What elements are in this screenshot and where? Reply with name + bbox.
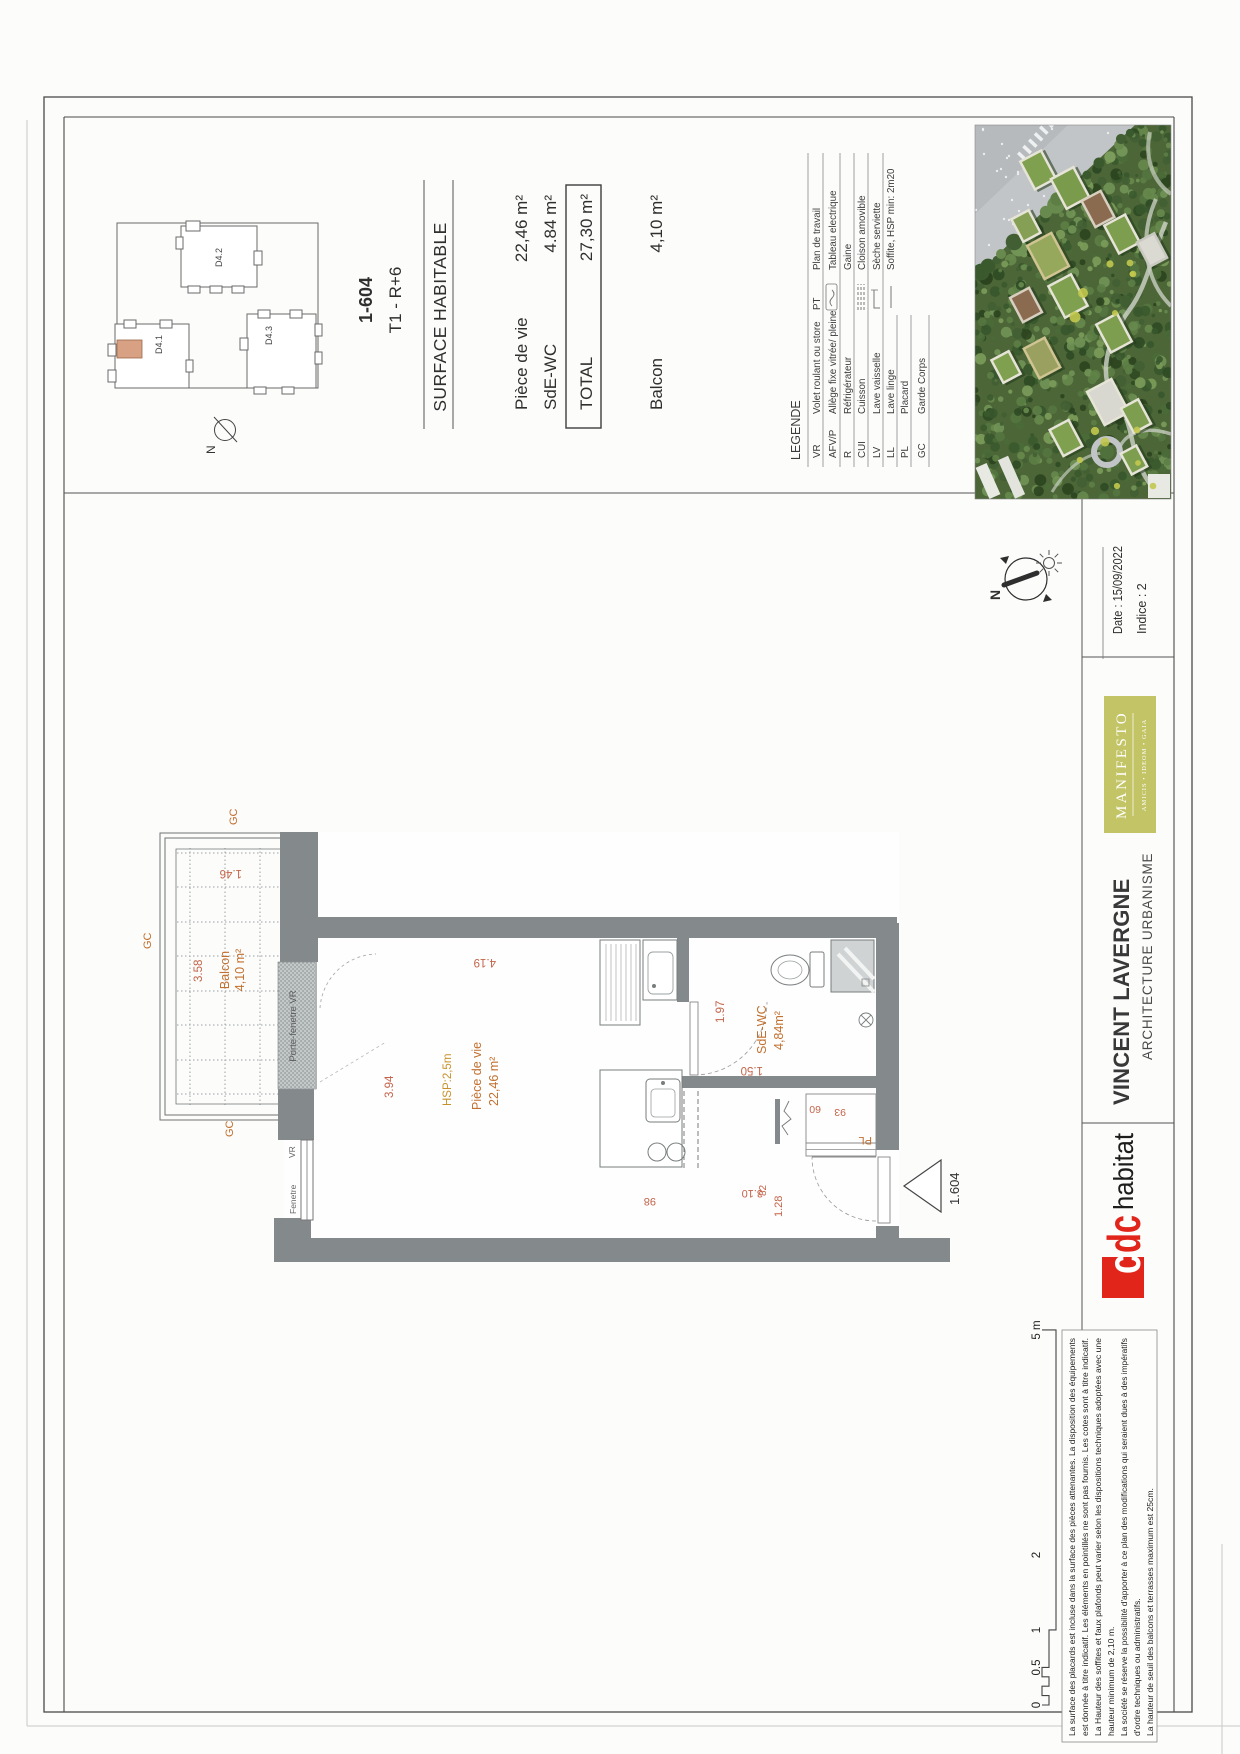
svg-text:GC: GC xyxy=(917,443,928,458)
svg-text:4.19: 4.19 xyxy=(474,956,496,968)
svg-text:22,46 m²: 22,46 m² xyxy=(512,195,531,262)
svg-text:3.58: 3.58 xyxy=(193,960,205,982)
svg-text:PL: PL xyxy=(859,1134,872,1146)
svg-text:habitat: habitat xyxy=(1108,1133,1139,1210)
svg-text:PT: PT xyxy=(812,297,823,310)
svg-text:1.28: 1.28 xyxy=(773,1196,785,1217)
svg-text:1.604: 1.604 xyxy=(947,1172,962,1205)
svg-text:Gaine: Gaine xyxy=(843,243,854,270)
svg-text:R: R xyxy=(843,451,854,458)
svg-text:0: 0 xyxy=(1031,1702,1043,1708)
svg-text:LL: LL xyxy=(886,447,897,458)
svg-text:93: 93 xyxy=(834,1106,846,1118)
svg-text:SURFACE HABITABLE: SURFACE HABITABLE xyxy=(430,222,450,411)
svg-text:Indice : 2: Indice : 2 xyxy=(1135,583,1149,634)
svg-text:Plan de travail: Plan de travail xyxy=(812,208,823,270)
svg-text:VR: VR xyxy=(812,444,823,458)
svg-text:Tableau electrique: Tableau electrique xyxy=(828,190,839,270)
svg-text:2: 2 xyxy=(1031,1552,1043,1558)
svg-text:3.94: 3.94 xyxy=(384,1075,396,1098)
svg-text:1.46: 1.46 xyxy=(220,867,242,879)
svg-text:GC: GC xyxy=(228,808,240,825)
svg-text:60: 60 xyxy=(809,1103,821,1115)
svg-text:dc: dc xyxy=(1098,1215,1150,1253)
svg-text:Sèche serviette: Sèche serviette xyxy=(872,202,883,270)
svg-text:d'ordre techniques ou administ: d'ordre techniques ou administratifs. xyxy=(1132,1598,1142,1736)
svg-text:SdE-WC: SdE-WC xyxy=(541,344,560,410)
svg-text:4,84m²: 4,84m² xyxy=(772,1011,786,1050)
svg-text:Cloison amovible: Cloison amovible xyxy=(857,195,868,270)
svg-text:1: 1 xyxy=(1031,1627,1043,1633)
svg-text:LV: LV xyxy=(872,446,883,458)
svg-text:MANIFESTO: MANIFESTO xyxy=(1114,711,1130,819)
svg-text:Réfrigérateur: Réfrigérateur xyxy=(843,356,854,414)
svg-text:N: N xyxy=(204,445,218,454)
svg-text:La hauteur de seuil des balcon: La hauteur de seuil des balcons et terra… xyxy=(1145,1488,1155,1736)
svg-text:Date : 15/09/2022: Date : 15/09/2022 xyxy=(1111,546,1125,634)
svg-text:c: c xyxy=(1098,1254,1150,1274)
svg-text:AFV/P: AFV/P xyxy=(828,429,839,458)
svg-text:4,10 m²: 4,10 m² xyxy=(647,195,666,253)
svg-text:Porte-fenetre VR: Porte-fenetre VR xyxy=(288,990,299,1061)
svg-text:VINCENT LAVERGNE: VINCENT LAVERGNE xyxy=(1109,879,1134,1105)
svg-text:La Hauteur des soffites et fau: La Hauteur des soffites et faux plafonds… xyxy=(1093,1338,1103,1736)
svg-text:22,46 m²: 22,46 m² xyxy=(487,1057,501,1106)
svg-text:Allège fixe vitrée/ pleine: Allège fixe vitrée/ pleine xyxy=(828,310,839,414)
svg-text:La société se réserve la possi: La société se réserve la possibilité d'a… xyxy=(1119,1338,1129,1736)
svg-text:PL: PL xyxy=(900,445,911,458)
svg-text:LEGENDE: LEGENDE xyxy=(789,400,803,460)
svg-text:D4.3: D4.3 xyxy=(264,326,274,345)
svg-text:CUI: CUI xyxy=(857,441,868,458)
svg-text:hauteur minimum de 2,10 m.: hauteur minimum de 2,10 m. xyxy=(1106,1627,1116,1736)
svg-text:4.84 m²: 4.84 m² xyxy=(541,195,560,253)
svg-text:Lave linge: Lave linge xyxy=(886,369,897,414)
svg-text:D4.2: D4.2 xyxy=(214,248,224,267)
svg-text:AMICIS • IDEOM • GAIA: AMICIS • IDEOM • GAIA xyxy=(1141,719,1148,811)
svg-text:27,30 m²: 27,30 m² xyxy=(577,194,596,261)
svg-text:HSP:2,5m: HSP:2,5m xyxy=(442,1054,454,1106)
svg-text:Balcon: Balcon xyxy=(218,951,232,989)
svg-text:SdE-WC: SdE-WC xyxy=(755,1005,769,1054)
svg-text:Balcon: Balcon xyxy=(647,358,666,410)
svg-text:82: 82 xyxy=(758,1184,769,1196)
svg-text:1.50: 1.50 xyxy=(741,1064,763,1076)
svg-text:Garde Corps: Garde Corps xyxy=(917,358,928,414)
svg-text:Pièce de vie: Pièce de vie xyxy=(512,317,531,410)
svg-text:5 m: 5 m xyxy=(1031,1320,1043,1339)
svg-text:0.5: 0.5 xyxy=(1031,1660,1043,1676)
svg-text:D4.1: D4.1 xyxy=(154,335,164,354)
svg-text:N: N xyxy=(987,590,1003,600)
svg-text:Cuisson: Cuisson xyxy=(857,379,868,414)
svg-text:Volet roulant ou store: Volet roulant ou store xyxy=(812,321,823,414)
svg-text:Fenetre: Fenetre xyxy=(288,1184,298,1214)
svg-text:GC: GC xyxy=(224,1120,236,1137)
svg-text:ARCHITECTURE URBANISME: ARCHITECTURE URBANISME xyxy=(1140,853,1155,1060)
svg-text:1-604: 1-604 xyxy=(356,277,376,323)
svg-text:Lave vaisselle: Lave vaisselle xyxy=(872,352,883,414)
svg-text:4,10 m²: 4,10 m² xyxy=(233,949,247,991)
svg-text:GC: GC xyxy=(142,932,154,949)
svg-text:est donnée à titre indicatif.: est donnée à titre indicatif. Les élémen… xyxy=(1080,1338,1090,1736)
svg-text:La surface des placards est in: La surface des placards est incluse dans… xyxy=(1067,1338,1077,1736)
svg-text:98: 98 xyxy=(644,1195,656,1207)
svg-text:T1 - R+6: T1 - R+6 xyxy=(386,267,405,334)
svg-text:Soffite, HSP min: 2m20: Soffite, HSP min: 2m20 xyxy=(886,168,897,270)
svg-text:TOTAL: TOTAL xyxy=(577,357,596,410)
svg-text:Placard: Placard xyxy=(900,381,911,414)
svg-text:1.97: 1.97 xyxy=(715,1001,727,1023)
svg-text:Pièce de vie: Pièce de vie xyxy=(470,1042,484,1110)
svg-text:VR: VR xyxy=(287,1146,297,1158)
